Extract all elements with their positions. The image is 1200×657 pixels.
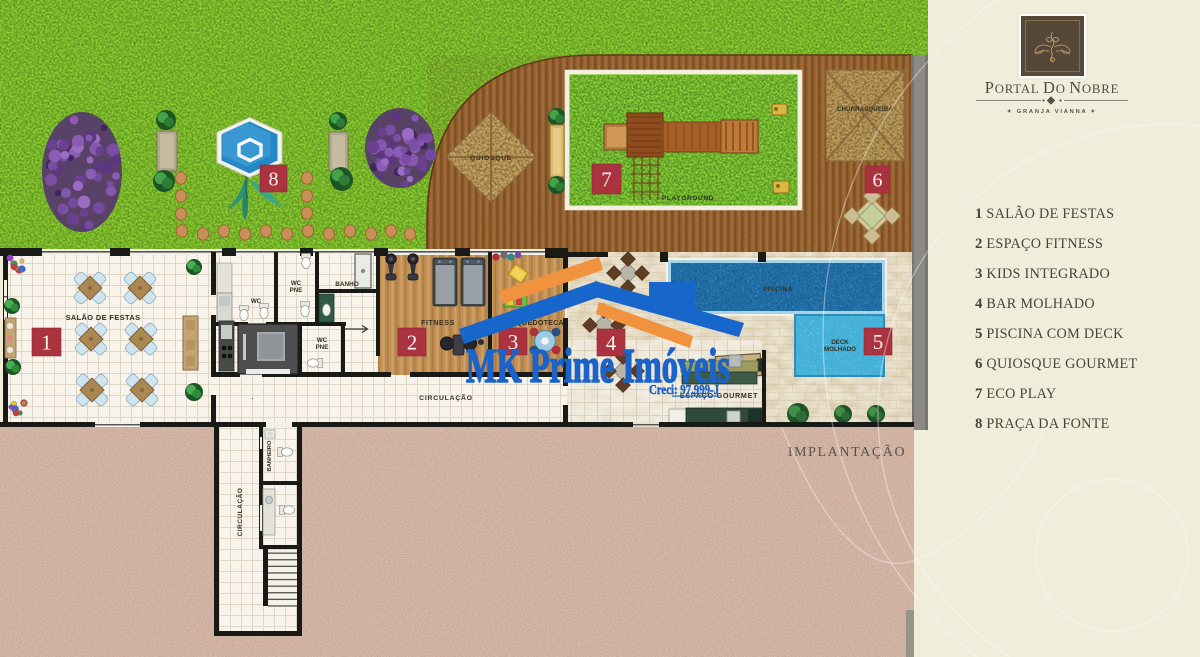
svg-text:✦ GRANJA VIANNA ✦: ✦ GRANJA VIANNA ✦ — [1007, 108, 1097, 115]
svg-text:CIRCULAÇÃO: CIRCULAÇÃO — [419, 393, 473, 402]
svg-text:BANHO: BANHO — [335, 281, 358, 288]
svg-text:8PRAÇA DA FONTE: 8PRAÇA DA FONTE — [975, 416, 1110, 432]
svg-text:1: 1 — [41, 331, 52, 355]
svg-text:2ESPAÇO FITNESS: 2ESPAÇO FITNESS — [975, 236, 1103, 252]
svg-text:FITNESS: FITNESS — [421, 320, 455, 327]
svg-text:5PISCINA COM DECK: 5PISCINA COM DECK — [975, 326, 1124, 342]
svg-text:QUIOSQUE: QUIOSQUE — [470, 155, 512, 162]
svg-text:6QUIOSQUE GOURMET: 6QUIOSQUE GOURMET — [975, 356, 1137, 372]
svg-text:3KIDS INTEGRADO: 3KIDS INTEGRADO — [975, 266, 1110, 282]
svg-text:SALÃO DE FESTAS: SALÃO DE FESTAS — [66, 313, 141, 322]
svg-text:WC: WC — [317, 337, 328, 344]
svg-text:7: 7 — [601, 168, 612, 192]
svg-text:WC: WC — [291, 280, 302, 287]
svg-text:PNE: PNE — [290, 287, 303, 294]
svg-text:CIRCULAÇÃO: CIRCULAÇÃO — [235, 488, 244, 537]
svg-text:6: 6 — [873, 170, 883, 192]
svg-text:5: 5 — [873, 330, 884, 354]
svg-text:BANHEIRO: BANHEIRO — [267, 440, 273, 471]
svg-text:8: 8 — [269, 169, 279, 191]
svg-text:4BAR MOLHADO: 4BAR MOLHADO — [975, 296, 1095, 312]
svg-text:PNE: PNE — [316, 344, 329, 351]
svg-text:PISCINA: PISCINA — [763, 286, 793, 293]
svg-text:2: 2 — [407, 331, 418, 355]
svg-text:DECK: DECK — [831, 339, 849, 346]
svg-text:7ECO PLAY: 7ECO PLAY — [975, 386, 1056, 402]
svg-text:CHURRASQUEIRA: CHURRASQUEIRA — [837, 107, 893, 113]
svg-text:1SALÃO DE FESTAS: 1SALÃO DE FESTAS — [975, 206, 1114, 222]
svg-text:IMPLANTAÇÃO: IMPLANTAÇÃO — [788, 444, 906, 460]
svg-text:PLAYGROUND: PLAYGROUND — [662, 195, 714, 202]
svg-text:MOLHADO: MOLHADO — [824, 346, 856, 353]
